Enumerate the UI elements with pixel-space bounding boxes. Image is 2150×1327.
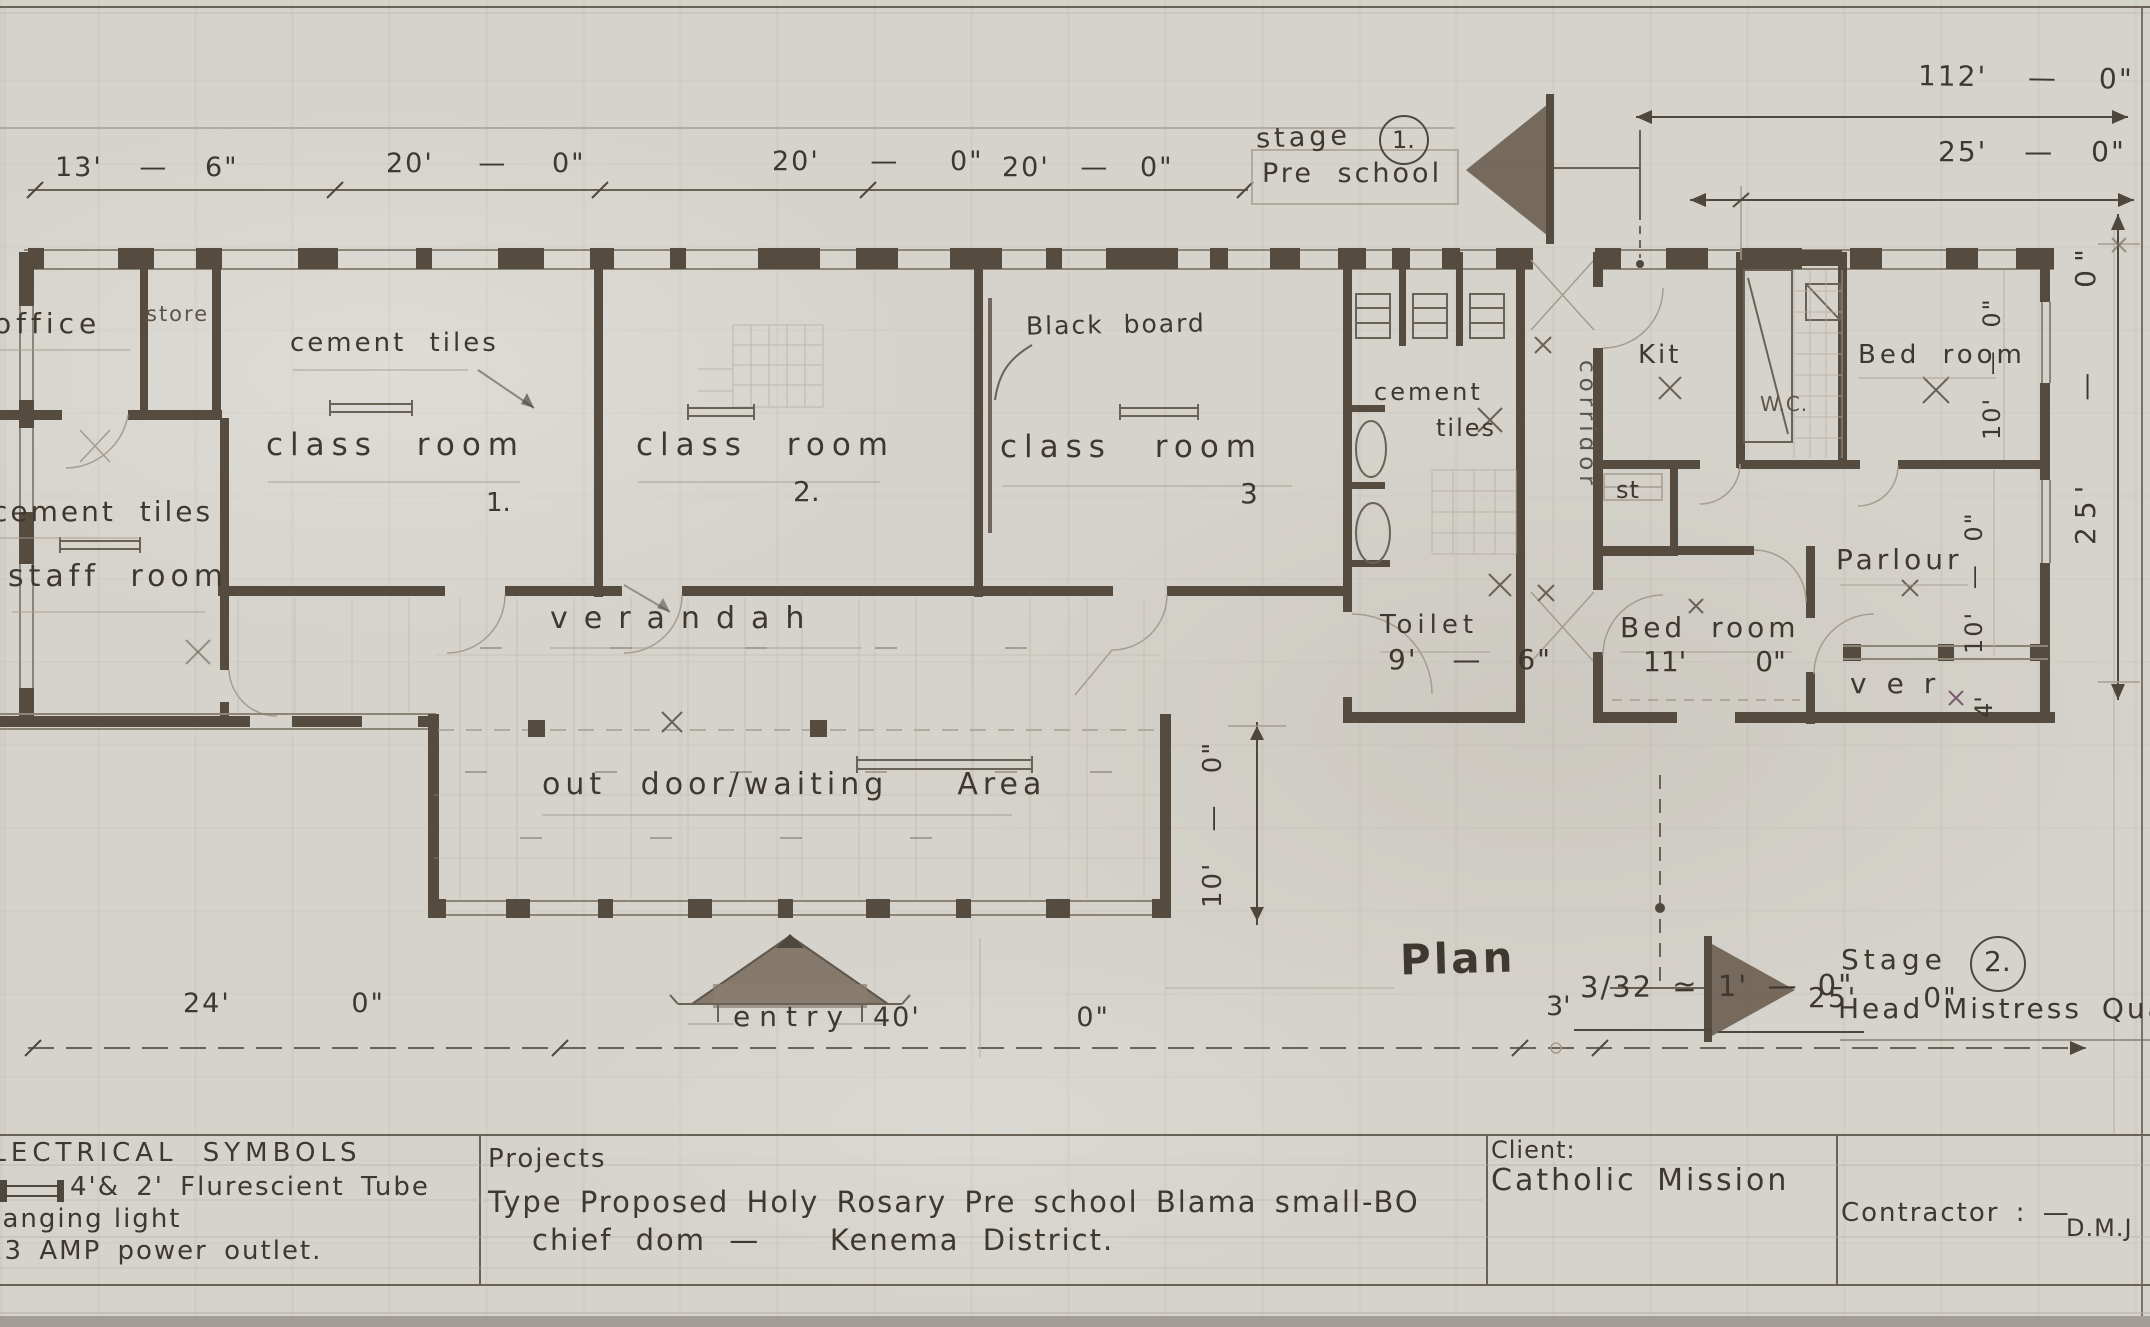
room-class2-label: class room [636,430,895,461]
room-class3-label: class room [1000,432,1263,463]
north-wall [24,248,2054,269]
room-kit-label: Kit [1638,342,1681,368]
top-dim-3: 20' — 0" [772,148,984,175]
toilet-tile-grid [1432,470,1516,554]
room-class3-number: 3 [1240,480,1258,508]
south-wall-and-outdoor [0,712,2055,918]
room-class2-number: 2. [793,478,820,506]
room-staff-label: staff room [8,562,228,592]
plan-title: Plan [1399,936,1515,981]
project-title-line1: Type Proposed Holy Rosary Pre school Bla… [488,1188,1420,1217]
class2-sketch-grid [698,325,823,407]
client-name: Catholic Mission [1491,1166,1789,1196]
bottom-dim-25: 25' 0" [1808,984,1958,1012]
room-corridor-label: corridor [1575,360,1598,490]
bottom-dim-40: 40' 0" [873,1004,1110,1031]
dim-25-right: 25' — 0" [2072,241,2100,545]
class1-tiles-note: cement tiles [290,330,499,356]
stage2-label: Stage [1841,946,1947,974]
toilet-tiles-note-2: tiles [1436,416,1496,440]
stage1-name: Pre school [1262,160,1442,187]
room-class1-label: class room [266,430,525,461]
wc-fixtures [1744,270,1842,458]
electrical-outlet-note: 13 AMP power outlet. [0,1238,322,1264]
stage1-number: 1. [1392,128,1415,152]
dim-ver4: 4' [1972,696,1996,718]
top-dim-2: 20' — 0" [386,150,586,177]
client-label: Client: [1491,1138,1576,1162]
basin-fixture [1356,421,1386,477]
contractor-label: Contractor : — [1841,1200,2071,1226]
dim-bed10: 10' — 0" [1980,297,2004,440]
basin-fixture [1356,503,1390,563]
stage2-number: 2. [1984,948,2011,976]
stage1-label: stage [1256,122,1352,152]
legend-tube-symbol [0,1180,64,1202]
room-bed-bottom-label: Bed room [1620,614,1800,642]
dim-25-top: 25' — 0" [1938,138,2126,166]
dim-parlour10: 10' — 0" [1962,511,1986,654]
projects-label: Projects [488,1146,607,1172]
electrical-symbols-title: ELECTRICAL SYMBOLS [0,1140,361,1166]
top-dim-4: 20' — 0" [1002,154,1174,181]
bed-bottom-dim: 11' 0" [1643,648,1786,676]
staff-tiles-note: cement tiles [0,498,213,526]
floor-grid [238,598,1160,898]
dim-112: 112' — 0" [1918,62,2134,94]
room-ver-label: ver [1850,670,1955,698]
electrical-tube-note: 4'& 2' Flurescient Tube [70,1174,430,1200]
room-wc-label: W.C. [1760,394,1808,414]
sheet-frame [0,6,2150,1327]
room-office-label: office [0,310,101,338]
room-class1-number: 1. [486,490,511,516]
bottom-dim-24: 24' 0" [183,990,385,1017]
room-toilet-label: Toilet [1380,612,1478,638]
entry-label: entry [733,1003,852,1031]
toilet-tiles-note-1: cement [1374,380,1483,404]
room-outdoor-label: out door/waiting Area [542,770,1046,800]
floor-plan-sheet: 13' — 6" 20' — 0" 20' — 0" 20' — 0" stag… [0,0,2150,1327]
room-store-label: store [146,304,209,325]
toilet-stall-fixtures [1356,294,1504,338]
dim-outdoor10: 10' — 0" [1200,741,1226,908]
room-st-label: st [1616,478,1640,502]
top-dim-1: 13' — 6" [55,154,239,181]
electrical-light-note: hanging light [0,1206,182,1232]
project-title-line2: chief dom — Kenema District. [532,1226,1114,1255]
bottom-dim-3: 3' [1546,993,1571,1020]
stage1-arrow-icon [1466,94,1644,268]
label-underlines [0,350,1996,815]
toilet-dim: 9' — 6" [1388,646,1552,674]
blackboard-leader-line [995,345,1032,400]
room-parlour-label: Parlour [1836,546,1962,574]
plan-drawing [0,0,2150,1327]
blackboard-note: Black board [1026,310,1206,338]
contractor-name: D.M.J [2066,1216,2133,1240]
room-verandah-label: verandah [550,604,820,634]
